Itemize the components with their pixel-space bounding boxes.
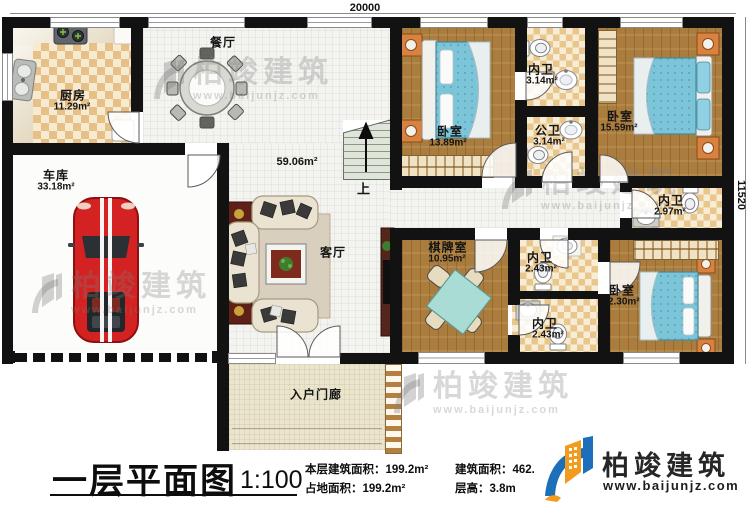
room-label-dining: 餐厅 <box>210 34 236 51</box>
window-living-top <box>307 17 372 28</box>
window-bedroom1-top <box>420 17 488 28</box>
wall-ensuite2-left-b <box>620 218 632 228</box>
room-area-ensuite3: 2.43m² <box>525 264 557 275</box>
wall-living-bottom-a <box>217 353 228 364</box>
wall-bed1-bath-a <box>515 17 527 72</box>
room-area-bedroom3: 12.30m² <box>602 297 639 308</box>
plan-scale: 1:100 <box>240 466 303 495</box>
window-chess-bottom <box>418 352 485 364</box>
wall-wing-bottom-a <box>390 352 418 364</box>
room-area-garage: 33.18m² <box>37 182 74 193</box>
room-area-public-bath: 3.14m² <box>533 137 565 148</box>
brand-website: www.baijunjz.com <box>603 478 739 493</box>
wall-corridor-top-a <box>390 176 482 188</box>
wall-corridor-top-b <box>516 176 542 188</box>
room-area-kitchen: 11.29m² <box>54 102 91 113</box>
window-bedroom3-bottom <box>623 352 680 364</box>
wall-wing-bottom-b <box>485 352 623 364</box>
wall-bath-bed2 <box>585 17 598 188</box>
bedroom-3-wardrobe <box>633 240 719 260</box>
bedroom-1-floor <box>402 28 515 176</box>
dimension-top: 20000 <box>350 2 381 14</box>
room-area-ensuite2: 2.97m² <box>654 207 686 218</box>
window-dining-top <box>148 17 245 28</box>
hallway-floor <box>390 188 620 228</box>
wall-bath-divider-top <box>515 106 598 117</box>
staircase <box>343 120 392 180</box>
porch-edge-lines <box>232 428 382 444</box>
floor-plan-page: 柏竣建筑www.baijunjz.com 柏竣建筑www.baijunjz.co… <box>0 0 750 508</box>
wall-ensuite2-left-a <box>620 183 632 192</box>
info-footprint-area: 占地面积：199.2m² <box>305 480 405 496</box>
stairs-up-label: 上 <box>357 179 371 198</box>
window-bath-top <box>527 17 563 28</box>
wall-center-upper <box>390 17 402 190</box>
garage-door-dashed <box>15 353 212 362</box>
wall-right <box>722 17 734 364</box>
wall-bath-divider-bottom <box>508 291 598 299</box>
window-kitchen-top <box>50 17 120 28</box>
kitchen-counter-left <box>13 45 35 143</box>
wall-kitchen-right <box>131 17 143 112</box>
bedroom-2-wardrobe <box>598 30 617 104</box>
wall-corridor-top-d <box>628 176 734 188</box>
watermark: 柏竣建筑www.baijunjz.com <box>390 372 573 416</box>
wall-corridor-top-c <box>572 176 600 188</box>
room-area-bedroom1: 13.89m² <box>429 138 466 149</box>
wall-garage-bottom-left <box>2 351 15 363</box>
bedroom-1-wardrobe <box>398 155 494 178</box>
wall-corridor-bottom-c <box>568 228 734 240</box>
wall-center-lower <box>390 228 402 364</box>
window-living-bottom <box>228 353 276 364</box>
brand-logo-icon <box>543 436 599 502</box>
info-gross-area: 建筑面积：462. <box>455 461 535 477</box>
info-floor-height: 层高：3.8m <box>455 480 516 496</box>
room-area-bedroom2: 15.59m² <box>600 123 637 134</box>
porch-steps <box>385 364 402 454</box>
room-area-living: 59.06m² <box>277 156 318 168</box>
room-area-chess: 10.95m² <box>428 254 465 265</box>
info-floor-area: 本层建筑面积：199.2m² <box>305 461 428 477</box>
plan-title: 一层平面图 <box>52 453 237 504</box>
wall-garage-right <box>217 143 229 451</box>
dimension-right: 11520 <box>735 180 747 210</box>
wall-kitchen-garage <box>2 143 185 155</box>
room-label-living: 客厅 <box>320 244 346 261</box>
window-bedroom2-top <box>620 17 683 28</box>
window-kitchen-left <box>2 53 13 101</box>
wall-bath-bed3-a <box>598 228 610 262</box>
room-area-ensuite1: 3.14m² <box>526 76 558 87</box>
room-area-ensuite4: 2.43m² <box>532 330 564 341</box>
wall-wing-bottom-c <box>680 352 734 364</box>
room-label-porch: 入户门廊 <box>290 386 342 403</box>
